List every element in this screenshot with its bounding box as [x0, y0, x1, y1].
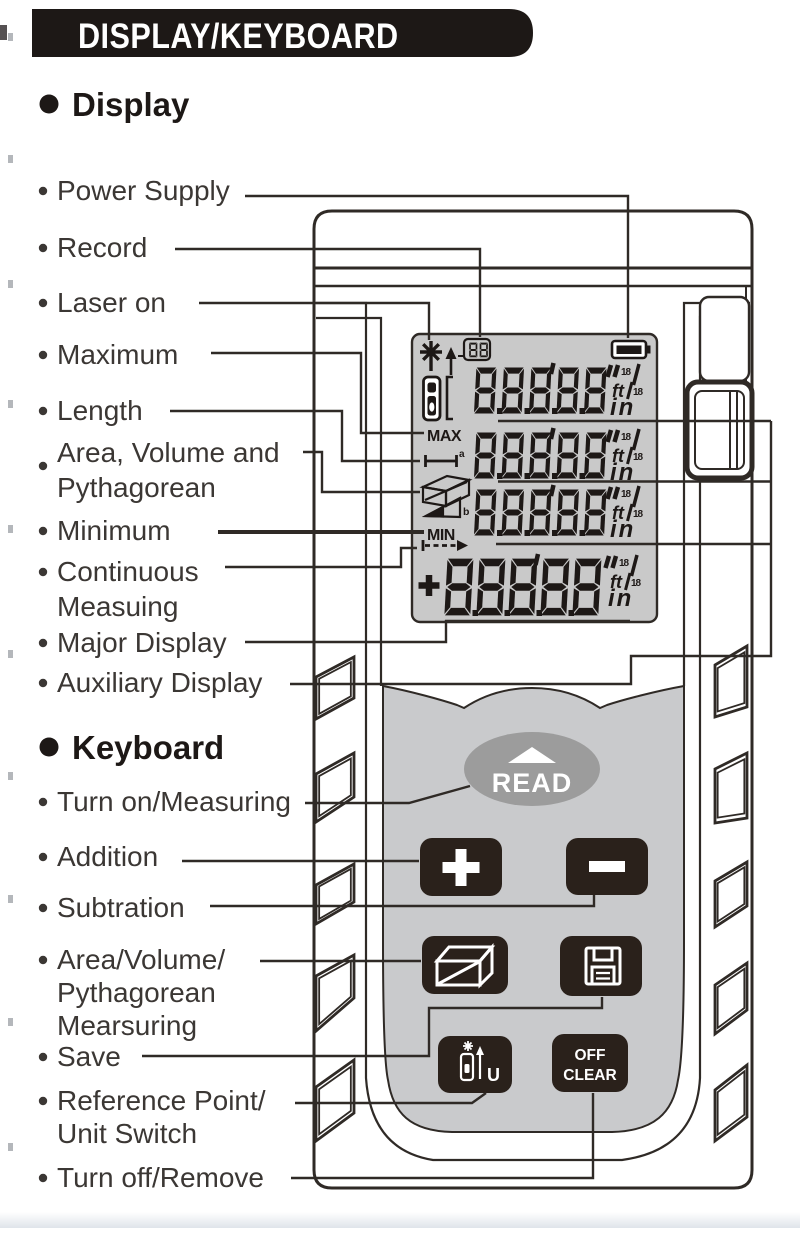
svg-text:READ: READ [492, 768, 573, 798]
svg-text:MAX: MAX [427, 428, 462, 445]
svg-text:Area/Volume/: Area/Volume/ [57, 944, 225, 975]
svg-text:Display: Display [72, 86, 190, 123]
svg-text:Turn on/Measuring: Turn on/Measuring [57, 786, 291, 817]
svg-text:18: 18 [619, 558, 630, 569]
svg-text:OFF: OFF [575, 1047, 606, 1064]
svg-text:18: 18 [621, 432, 632, 443]
svg-text:Unit Switch: Unit Switch [57, 1118, 197, 1149]
svg-text:Save: Save [57, 1041, 121, 1072]
svg-text:Continuous: Continuous [57, 556, 199, 587]
svg-text:Area, Volume and: Area, Volume and [57, 437, 280, 468]
svg-text:Record: Record [57, 232, 147, 263]
svg-text:Pythagorean: Pythagorean [57, 472, 216, 503]
svg-text:in: in [610, 516, 635, 543]
svg-text:Subtration: Subtration [57, 892, 185, 923]
svg-text:Pythagorean: Pythagorean [57, 977, 216, 1008]
svg-text:Turn off/Remove: Turn off/Remove [57, 1162, 264, 1193]
svg-text:Major Display: Major Display [57, 627, 227, 658]
svg-text:Laser on: Laser on [57, 287, 166, 318]
svg-text:CLEAR: CLEAR [563, 1067, 616, 1084]
svg-text:DISPLAY/KEYBOARD: DISPLAY/KEYBOARD [78, 16, 399, 55]
svg-text:U: U [487, 1065, 500, 1085]
svg-text:Keyboard: Keyboard [72, 729, 224, 766]
svg-text:Auxiliary Display: Auxiliary Display [57, 667, 262, 698]
svg-text:in: in [610, 394, 635, 421]
svg-text:Power Supply: Power Supply [57, 175, 230, 206]
svg-text:18: 18 [621, 489, 632, 500]
svg-text:Length: Length [57, 395, 143, 426]
svg-text:a: a [459, 449, 465, 460]
svg-text:Minimum: Minimum [57, 515, 171, 546]
svg-text:MIN: MIN [427, 527, 455, 544]
svg-text:Reference Point/: Reference Point/ [57, 1085, 266, 1116]
svg-text:Mearsuring: Mearsuring [57, 1010, 197, 1041]
svg-text:Maximum: Maximum [57, 339, 178, 370]
svg-text:Addition: Addition [57, 841, 158, 872]
svg-text:b: b [463, 506, 469, 518]
svg-text:in: in [608, 585, 633, 612]
svg-text:Measuing: Measuing [57, 591, 178, 622]
svg-text:18: 18 [621, 367, 632, 378]
